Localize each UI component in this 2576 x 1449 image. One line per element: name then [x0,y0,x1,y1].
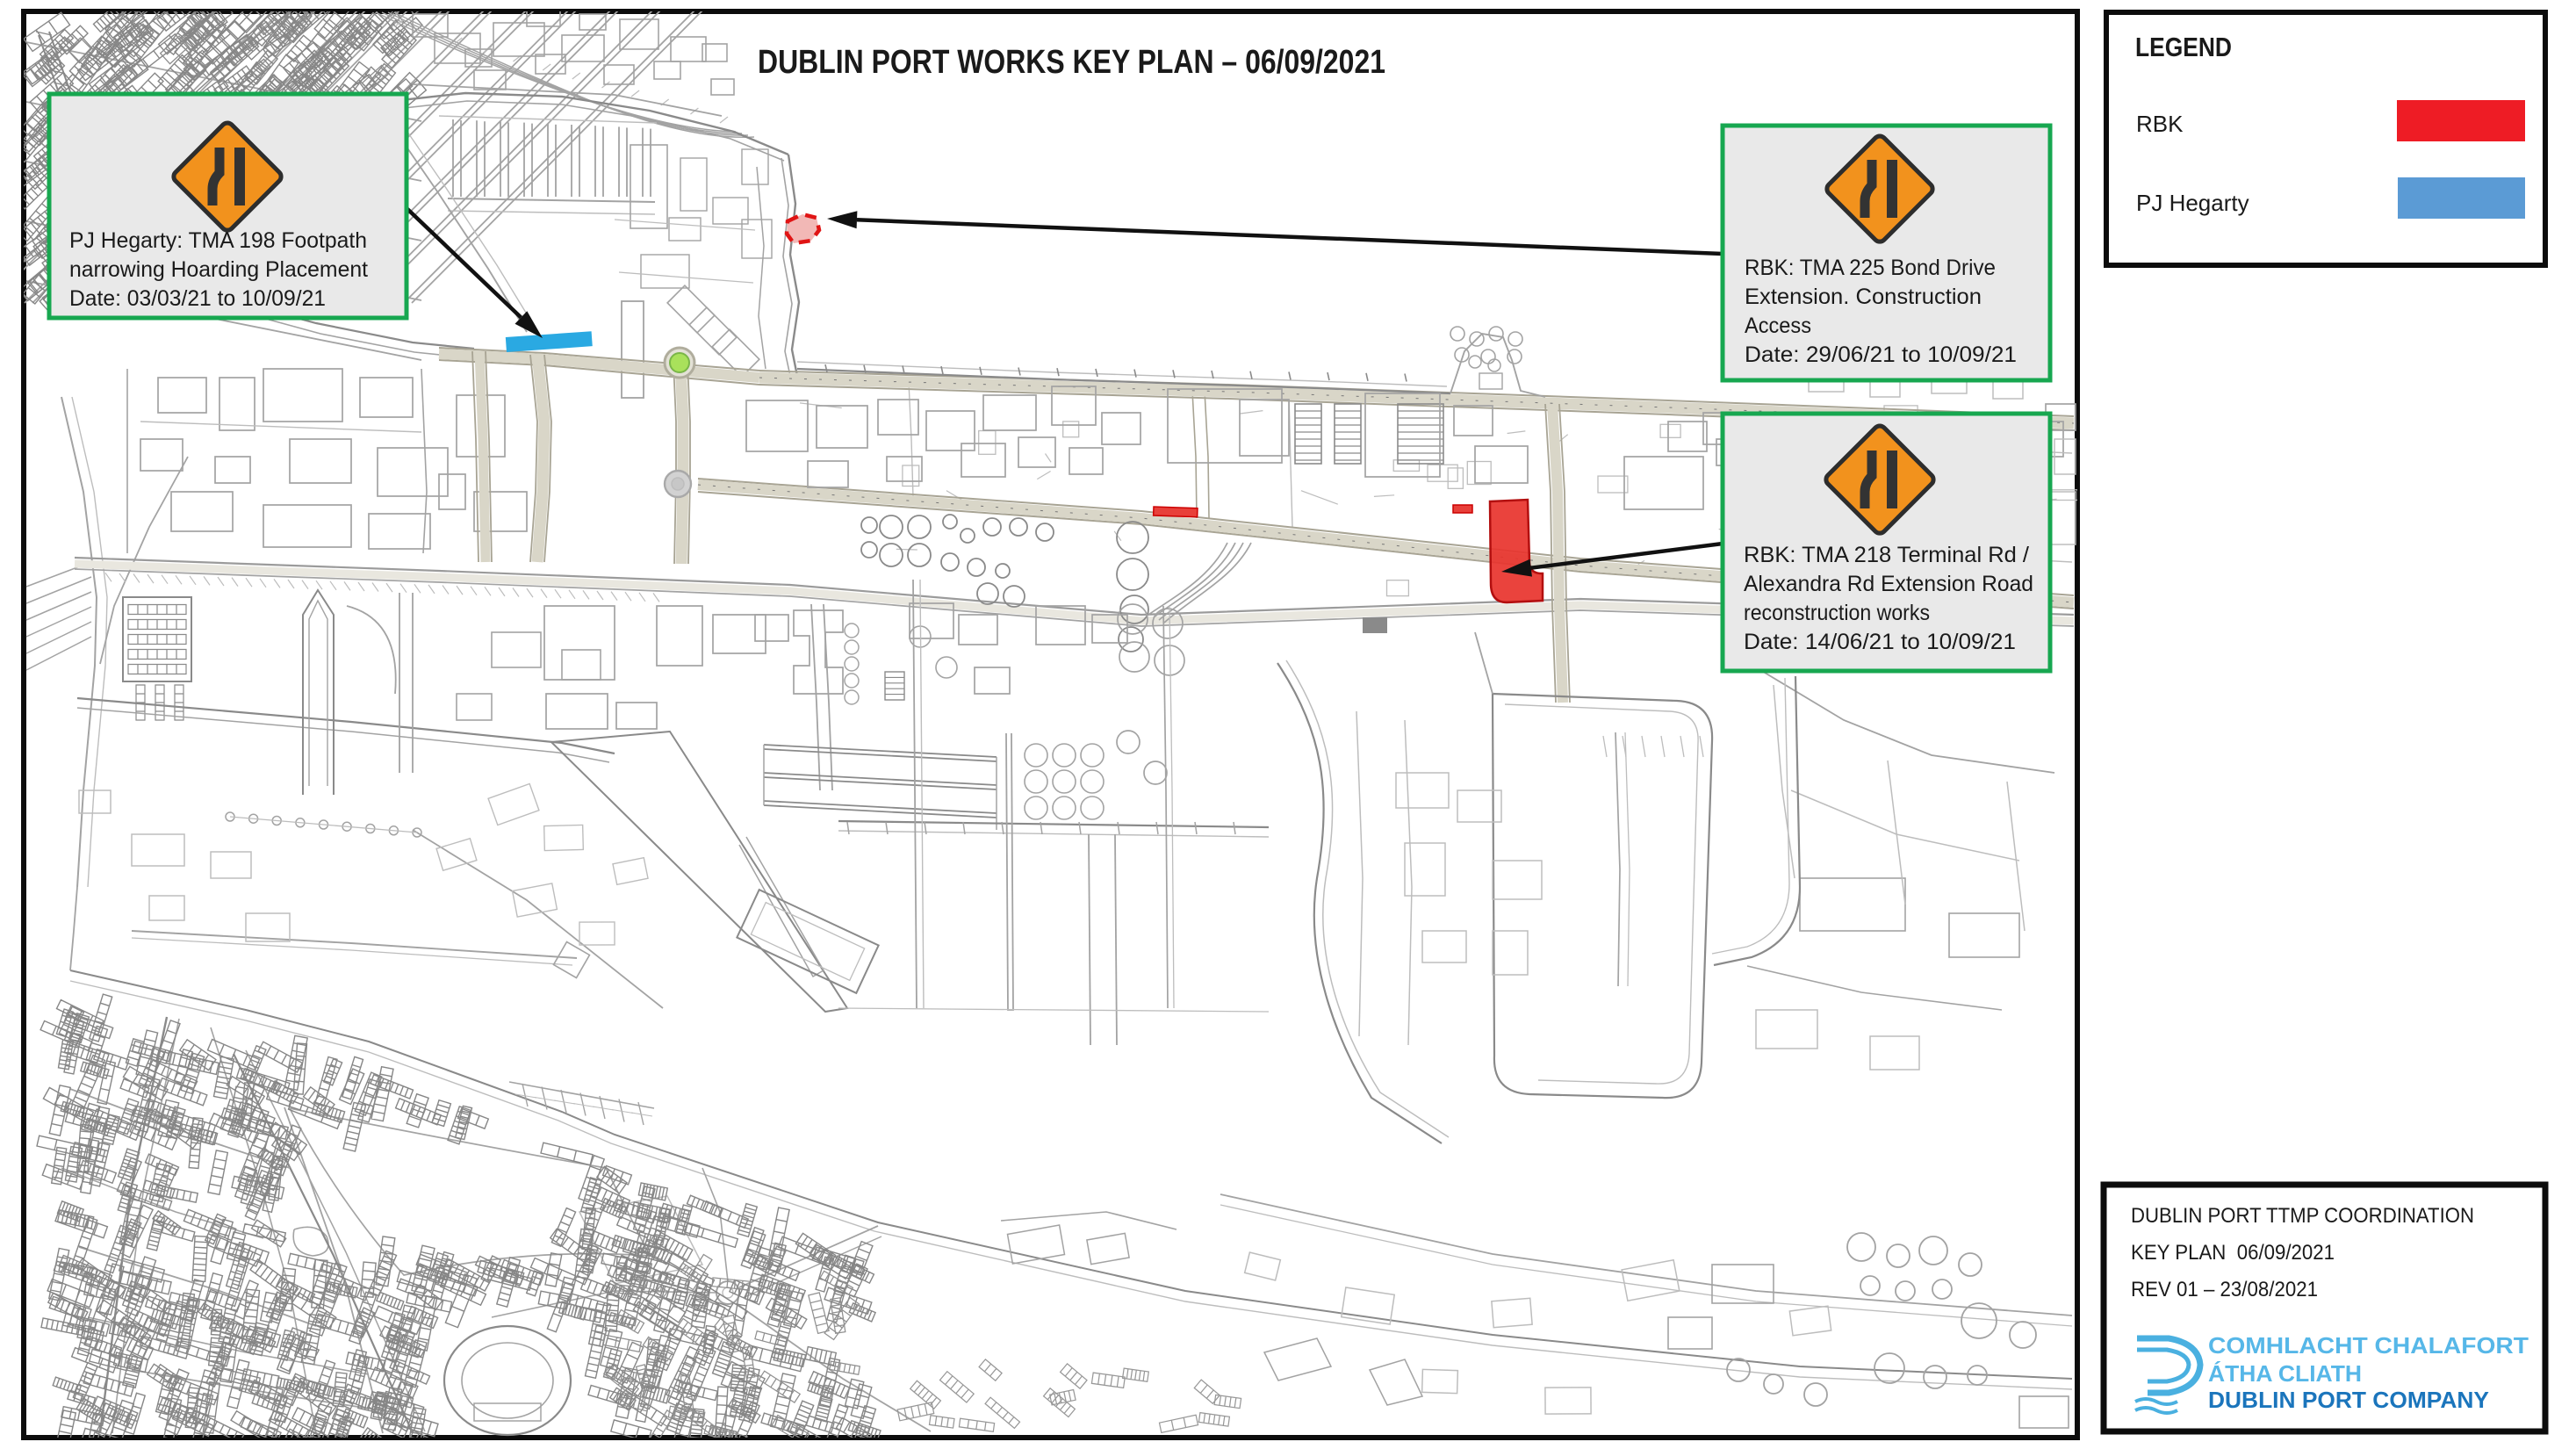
svg-text:reconstruction works: reconstruction works [1744,601,1930,625]
svg-text:REV 01 – 23/08/2021: REV 01 – 23/08/2021 [2131,1278,2318,1301]
svg-text:PJ Hegarty: TMA 198 Footpath: PJ Hegarty: TMA 198 Footpath [69,228,367,253]
svg-text:RBK: TMA 225 Bond Drive: RBK: TMA 225 Bond Drive [1745,256,1996,280]
svg-text:DUBLIN PORT TTMP COORDINATION: DUBLIN PORT TTMP COORDINATION [2131,1204,2474,1228]
svg-text:Access: Access [1745,314,1811,338]
svg-text:PJ Hegarty: PJ Hegarty [2136,190,2249,216]
svg-text:Alexandra Rd Extension Road: Alexandra Rd Extension Road [1744,572,2033,596]
svg-text:KEY PLAN 06/09/2021: KEY PLAN 06/09/2021 [2131,1241,2335,1265]
svg-text:narrowing Hoarding Placement: narrowing Hoarding Placement [69,257,368,282]
svg-text:COMHLACHT CHALAFORT: COMHLACHT CHALAFORT [2208,1332,2529,1359]
svg-text:DUBLIN PORT COMPANY: DUBLIN PORT COMPANY [2208,1387,2489,1413]
svg-text:Date: 29/06/21 to 10/09/21: Date: 29/06/21 to 10/09/21 [1745,342,2017,367]
svg-text:RBK: TMA 218 Terminal Rd /: RBK: TMA 218 Terminal Rd / [1744,543,2029,567]
svg-text:DUBLIN PORT WORKS KEY PLAN – 0: DUBLIN PORT WORKS KEY PLAN – 06/09/2021 [758,44,1385,81]
svg-text:RBK: RBK [2136,111,2184,137]
svg-text:LEGEND: LEGEND [2135,32,2232,62]
svg-text:ÁTHA CLIATH: ÁTHA CLIATH [2208,1360,2362,1387]
svg-text:Extension. Construction: Extension. Construction [1745,285,1982,309]
svg-text:Date: 14/06/21 to 10/09/21: Date: 14/06/21 to 10/09/21 [1744,630,2016,654]
svg-text:Date: 03/03/21 to 10/09/21: Date: 03/03/21 to 10/09/21 [69,286,326,311]
